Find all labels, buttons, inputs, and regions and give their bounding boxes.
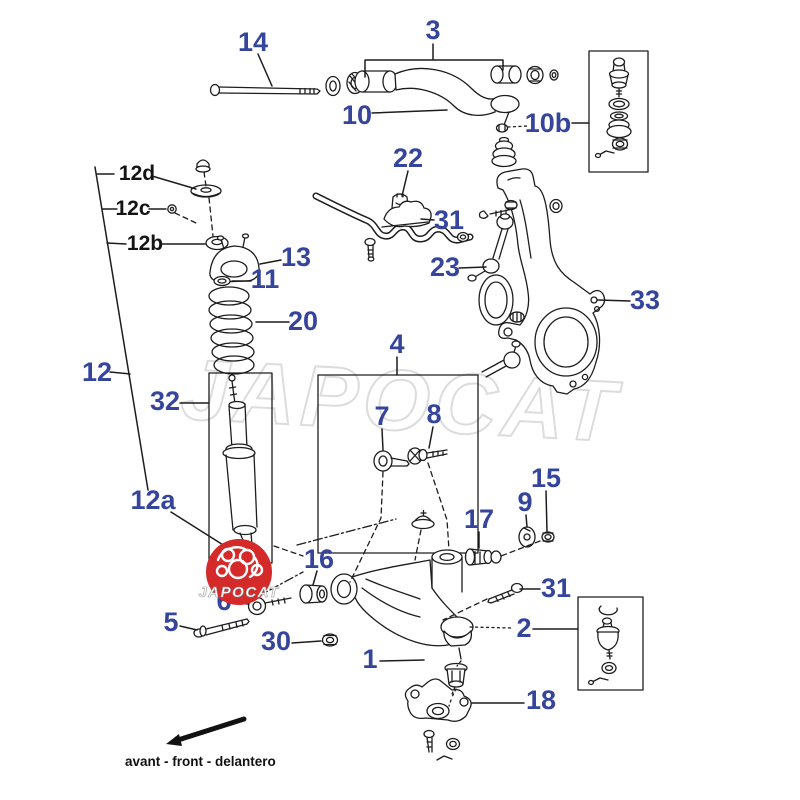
bolt-17-drawing <box>466 549 502 565</box>
diagram-canvas: JAPOCAT <box>0 0 800 800</box>
bump-stop-drawing <box>492 138 516 167</box>
lower-control-arm-drawing <box>331 550 473 659</box>
stabilizer-bracket-31-drawing <box>382 201 431 227</box>
part-label-30[interactable]: 30 <box>261 626 291 656</box>
front-arrow <box>178 719 244 740</box>
strut-rod-bolt-14-drawing <box>211 85 321 96</box>
nut-15-drawing <box>542 532 554 542</box>
direction-label: avant - front - delantero <box>125 754 276 769</box>
ball-joint-cup-drawing <box>445 664 467 688</box>
part-label-4[interactable]: 4 <box>389 329 404 359</box>
part-label-10[interactable]: 10 <box>342 100 372 130</box>
ball-joint-kit-2-drawing <box>578 597 643 690</box>
part-label-12a[interactable]: 12a <box>130 485 176 515</box>
part-label-11[interactable]: 11 <box>251 264 280 294</box>
part-label-33[interactable]: 33 <box>630 285 660 315</box>
arm-nut-ring-drawing <box>527 67 558 84</box>
part-label-3[interactable]: 3 <box>425 15 440 45</box>
part-label-22[interactable]: 22 <box>393 143 423 173</box>
bushing-16-drawing <box>300 585 327 603</box>
strut-mount-stack-drawing <box>168 160 259 286</box>
part-label-13[interactable]: 13 <box>281 242 311 272</box>
part-label-15[interactable]: 15 <box>531 463 561 493</box>
part-label-8[interactable]: 8 <box>426 399 441 429</box>
part-label-14[interactable]: 14 <box>238 27 268 57</box>
castle-nut-drawing <box>510 312 524 322</box>
bolt-5-drawing <box>194 619 249 637</box>
logo-text: JAPOCAT <box>198 584 279 601</box>
part-label-31-bolt[interactable]: 31 <box>541 573 571 603</box>
part-label-12[interactable]: 12 <box>82 357 112 387</box>
part-label-18[interactable]: 18 <box>526 685 556 715</box>
nut-30-drawing <box>323 634 338 646</box>
direction-indicator: avant - front - delantero <box>125 719 276 769</box>
stabilizer-link-23-drawing <box>458 209 514 281</box>
part-label-1[interactable]: 1 <box>362 644 377 674</box>
part-label-12b[interactable]: 12b <box>127 232 163 255</box>
part-label-23[interactable]: 23 <box>430 252 460 282</box>
stabilizer-bracket-bolt-drawing <box>365 239 375 262</box>
part-label-2[interactable]: 2 <box>516 613 531 643</box>
part-label-7[interactable]: 7 <box>374 401 389 431</box>
part-label-12c[interactable]: 12c <box>115 197 150 220</box>
hub-seal-drawing <box>479 275 513 325</box>
part-label-12d[interactable]: 12d <box>119 162 155 185</box>
part-label-10b[interactable]: 10b <box>525 108 572 138</box>
japocat-logo: JAPOCAT <box>198 539 279 605</box>
part-label-31-bracket[interactable]: 31 <box>434 205 464 235</box>
ball-joint-kit-10b-drawing <box>589 51 648 172</box>
part-label-16[interactable]: 16 <box>304 544 334 574</box>
upper-control-arm-drawing <box>355 66 521 132</box>
cam-washer-9-drawing <box>519 527 535 547</box>
part-label-5[interactable]: 5 <box>163 607 178 637</box>
suspension-parts-diagram: JAPOCAT <box>0 0 800 800</box>
part-label-17[interactable]: 17 <box>464 504 494 534</box>
part-label-20[interactable]: 20 <box>288 306 318 336</box>
part-label-9[interactable]: 9 <box>517 487 532 517</box>
part-label-32[interactable]: 32 <box>150 386 180 416</box>
front-arrow-head <box>166 734 182 746</box>
bolt-31-drawing <box>488 584 523 604</box>
bracket-18-drawing <box>405 679 471 760</box>
